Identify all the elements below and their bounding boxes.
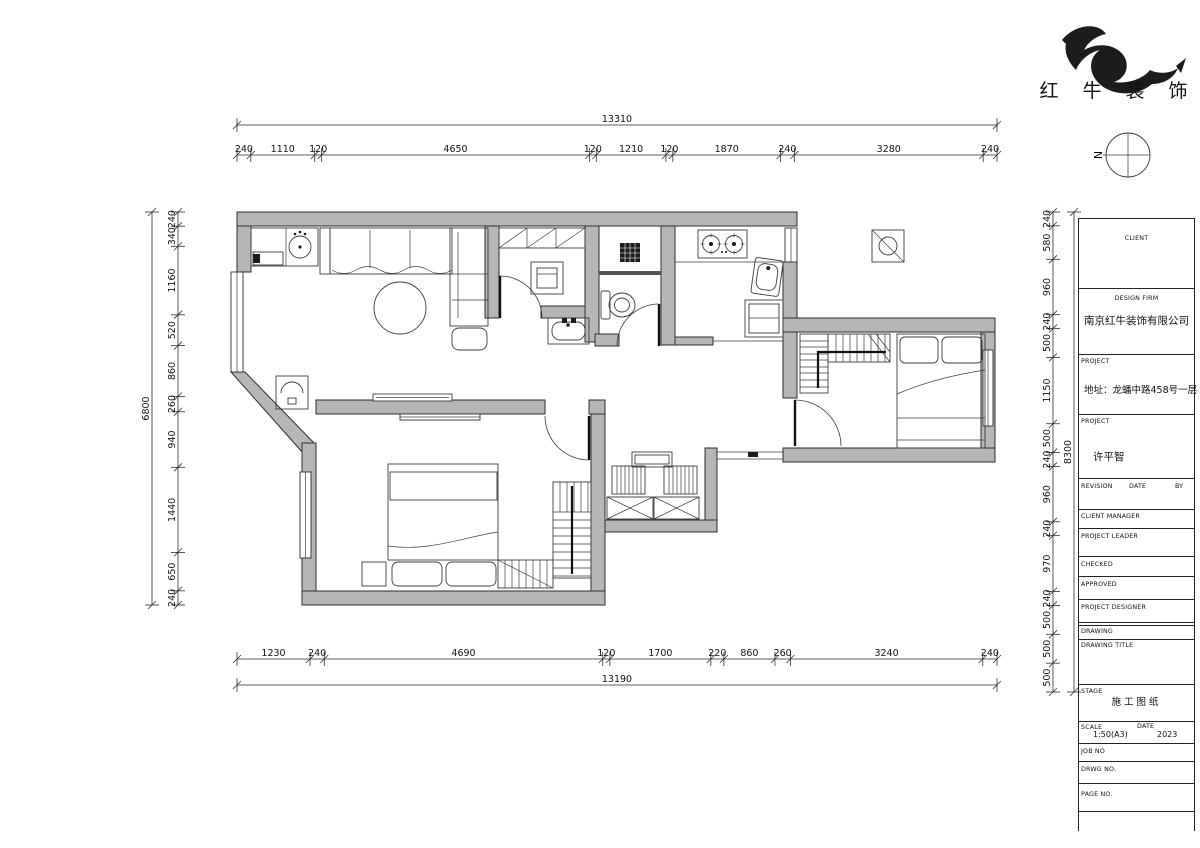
dim-label: 940 bbox=[167, 430, 178, 448]
drawing-title-label: DRAWING TITLE bbox=[1081, 642, 1133, 649]
window-kitchen-east bbox=[785, 228, 797, 262]
date-label-2: DATE bbox=[1137, 723, 1154, 730]
dim-label: 1870 bbox=[715, 144, 739, 155]
dim-label: 240 bbox=[1042, 520, 1053, 538]
project-label-2: PROJECT bbox=[1081, 418, 1110, 425]
dim-label: 240 bbox=[1042, 450, 1053, 468]
logo-text: 红 牛 装 饰 bbox=[1039, 80, 1196, 102]
dim-label: 240 bbox=[1042, 589, 1053, 607]
design-firm-label: DESIGN FIRM bbox=[1079, 295, 1194, 302]
dim-label: 860 bbox=[740, 648, 758, 659]
dim-label: 220 bbox=[708, 648, 726, 659]
door-study bbox=[500, 276, 542, 318]
compass-north-label: N bbox=[1092, 151, 1105, 159]
dim-right-segments: 2405809602405001150500240960240970240500… bbox=[1042, 208, 1060, 696]
dim-label: 6800 bbox=[141, 396, 152, 420]
tv-console bbox=[373, 394, 452, 401]
dim-label: 1700 bbox=[648, 648, 672, 659]
sofa bbox=[320, 228, 488, 350]
dim-label: 520 bbox=[167, 321, 178, 339]
bench-right bbox=[654, 497, 699, 519]
dim-label: 1440 bbox=[167, 498, 178, 522]
dim-label: 4650 bbox=[443, 144, 467, 155]
project-address: 地址：龙蟠中路458号一层 bbox=[1084, 382, 1197, 396]
dim-label: 3280 bbox=[877, 144, 901, 155]
by-label: BY bbox=[1175, 483, 1183, 490]
dim-label: 240 bbox=[235, 144, 253, 155]
date-label: DATE bbox=[1129, 483, 1146, 490]
project-name: 许平智 bbox=[1093, 449, 1125, 464]
checked-label: CHECKED bbox=[1081, 561, 1113, 568]
stairs-master bbox=[498, 482, 591, 588]
window-master-north bbox=[400, 414, 480, 420]
drawing-label: DRAWING bbox=[1081, 628, 1113, 635]
second-bedroom-bed bbox=[897, 334, 985, 448]
fridge bbox=[745, 300, 783, 337]
dim-bottom-segments: 1230240469012017002208602603240240 bbox=[233, 648, 1001, 666]
dim-label: 860 bbox=[167, 362, 178, 380]
dim-top-segments: 24011101204650120121012018702403280240 bbox=[233, 144, 1001, 162]
dim-label: 240 bbox=[778, 144, 796, 155]
chair-left bbox=[612, 466, 645, 494]
logo: 红 牛 装 饰 bbox=[1039, 26, 1196, 102]
project-label: PROJECT bbox=[1081, 358, 1110, 365]
dim-label: 240 bbox=[981, 144, 999, 155]
dim-label: 650 bbox=[167, 563, 178, 581]
door-bathroom bbox=[617, 304, 659, 346]
dim-label: 500 bbox=[1042, 611, 1053, 629]
project-leader-label: PROJECT LEADER bbox=[1081, 533, 1138, 540]
dim-label: 500 bbox=[1042, 429, 1053, 447]
dim-label: 960 bbox=[1042, 278, 1053, 296]
design-firm-name: 南京红牛装饰有限公司 bbox=[1079, 313, 1194, 328]
dim-label: 240 bbox=[981, 648, 999, 659]
title-block: CLIENT DESIGN FIRM 南京红牛装饰有限公司 PROJECT 地址… bbox=[1078, 218, 1195, 831]
dim-label: 580 bbox=[1042, 234, 1053, 252]
drawing-sheet: 红 牛 装 饰 N 13310 240111012046501201210120… bbox=[0, 0, 1200, 848]
client-manager-label: CLIENT MANAGER bbox=[1081, 513, 1140, 520]
round-rug bbox=[374, 282, 426, 334]
stairs-second-bedroom bbox=[800, 334, 890, 393]
page-no-label: PAGE NO. bbox=[1081, 791, 1112, 798]
dim-label: 240 bbox=[1042, 210, 1053, 228]
bench-left bbox=[607, 497, 653, 519]
dim-label: 120 bbox=[660, 144, 678, 155]
approved-label: APPROVED bbox=[1081, 581, 1117, 588]
drwg-no-label: DRWG NO. bbox=[1081, 766, 1116, 773]
north-compass: N bbox=[1092, 133, 1150, 177]
dim-label: 1150 bbox=[1042, 378, 1053, 402]
windows bbox=[231, 228, 993, 558]
dim-label: 340 bbox=[167, 227, 178, 245]
logo-bull-tail bbox=[1176, 58, 1186, 73]
entry-threshold bbox=[717, 452, 783, 459]
walls bbox=[231, 212, 995, 605]
balcony-dining bbox=[607, 452, 699, 519]
dim-label: 260 bbox=[167, 395, 178, 413]
dim-label: 1110 bbox=[271, 144, 295, 155]
desk-chair bbox=[531, 262, 563, 294]
dim-label: 8300 bbox=[1063, 440, 1074, 464]
dim-label: 13310 bbox=[602, 114, 632, 125]
dim-label: 240 bbox=[308, 648, 326, 659]
window-master-west bbox=[300, 472, 311, 558]
dim-left-overall: 6800 bbox=[141, 208, 159, 609]
chair-right bbox=[664, 466, 697, 494]
job-no-label: JOB NO bbox=[1081, 748, 1105, 755]
dim-label: 970 bbox=[1042, 555, 1053, 573]
date-value: 2023 bbox=[1157, 730, 1177, 739]
bay-window-west bbox=[231, 272, 243, 372]
dim-label: 4690 bbox=[451, 648, 475, 659]
dim-left-segments: 24034011605208602609401440650240 bbox=[167, 208, 185, 609]
kitchen-sink bbox=[751, 257, 784, 297]
door-second-bedroom bbox=[795, 400, 841, 446]
shower-screen bbox=[599, 271, 661, 275]
dim-label: 500 bbox=[1042, 640, 1053, 658]
dim-label: 240 bbox=[1042, 313, 1053, 331]
project-designer-label: PROJECT DESIGNER bbox=[1081, 604, 1146, 611]
dim-label: 240 bbox=[167, 210, 178, 228]
dim-bottom-overall: 13190 bbox=[233, 674, 1001, 692]
stage-value: 施工图纸 bbox=[1079, 694, 1194, 708]
dim-label: 960 bbox=[1042, 485, 1053, 503]
dim-label: 3240 bbox=[874, 648, 898, 659]
dim-label: 240 bbox=[167, 589, 178, 607]
vanity-basin bbox=[548, 318, 589, 344]
dim-label: 13190 bbox=[602, 674, 632, 685]
scale-value: 1:50(A3) bbox=[1093, 730, 1128, 739]
dim-label: 120 bbox=[309, 144, 327, 155]
dim-label: 120 bbox=[597, 648, 615, 659]
bathroom-fixtures bbox=[599, 243, 661, 319]
utility-cabinet-sink bbox=[251, 228, 318, 266]
washer bbox=[276, 376, 308, 409]
gas-stove bbox=[698, 230, 747, 258]
dim-label: 260 bbox=[774, 648, 792, 659]
dim-label: 120 bbox=[584, 144, 602, 155]
floor-drain bbox=[620, 243, 640, 262]
window-bedroom-east bbox=[983, 350, 993, 426]
dim-label: 1160 bbox=[167, 268, 178, 292]
dim-label: 500 bbox=[1042, 334, 1053, 352]
ac-unit-platform bbox=[872, 230, 904, 262]
dim-label: 500 bbox=[1042, 669, 1053, 687]
kitchen bbox=[675, 230, 783, 341]
dim-label: 1230 bbox=[261, 648, 285, 659]
client-label: CLIENT bbox=[1079, 235, 1194, 242]
dim-top-overall: 13310 bbox=[233, 114, 1001, 132]
table bbox=[632, 452, 672, 467]
revision-label: REVISION bbox=[1081, 483, 1113, 490]
toilet bbox=[601, 291, 635, 319]
wardrobe-study bbox=[499, 228, 585, 248]
master-bed bbox=[362, 464, 498, 586]
door-master-bedroom bbox=[545, 416, 589, 460]
floor-plan-canvas: 红 牛 装 饰 N 13310 240111012046501201210120… bbox=[0, 0, 1200, 848]
dim-label: 1210 bbox=[619, 144, 643, 155]
